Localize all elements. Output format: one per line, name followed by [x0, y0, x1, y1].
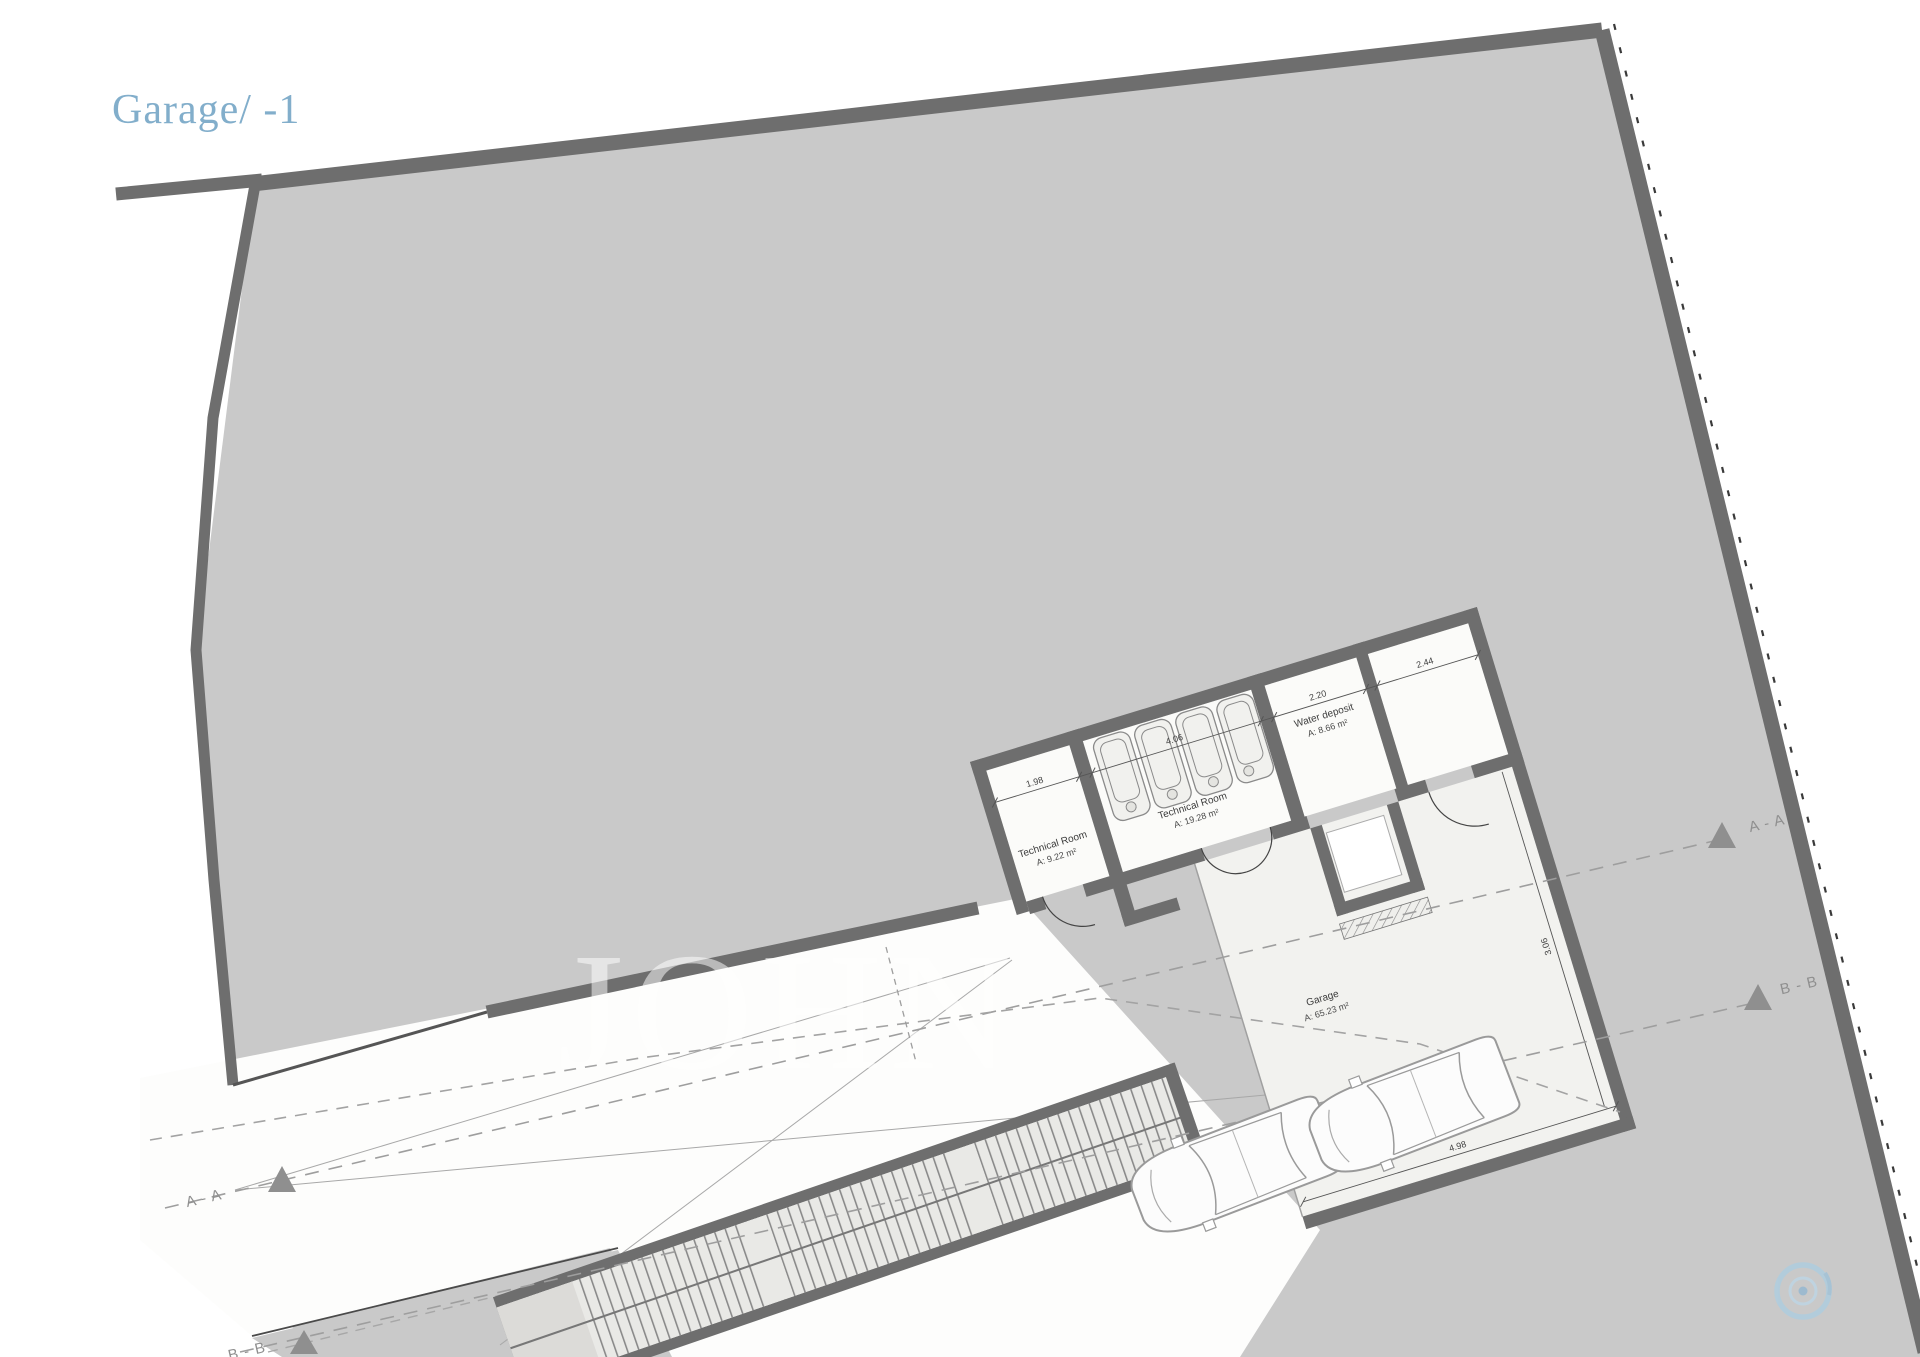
floor-plan-drawing: JOHN	[0, 0, 1920, 1357]
page-title: Garage/ -1	[112, 86, 300, 134]
watermark-text: JOHN	[558, 919, 1019, 1105]
floor-plan-page: JOHN	[0, 0, 1920, 1357]
